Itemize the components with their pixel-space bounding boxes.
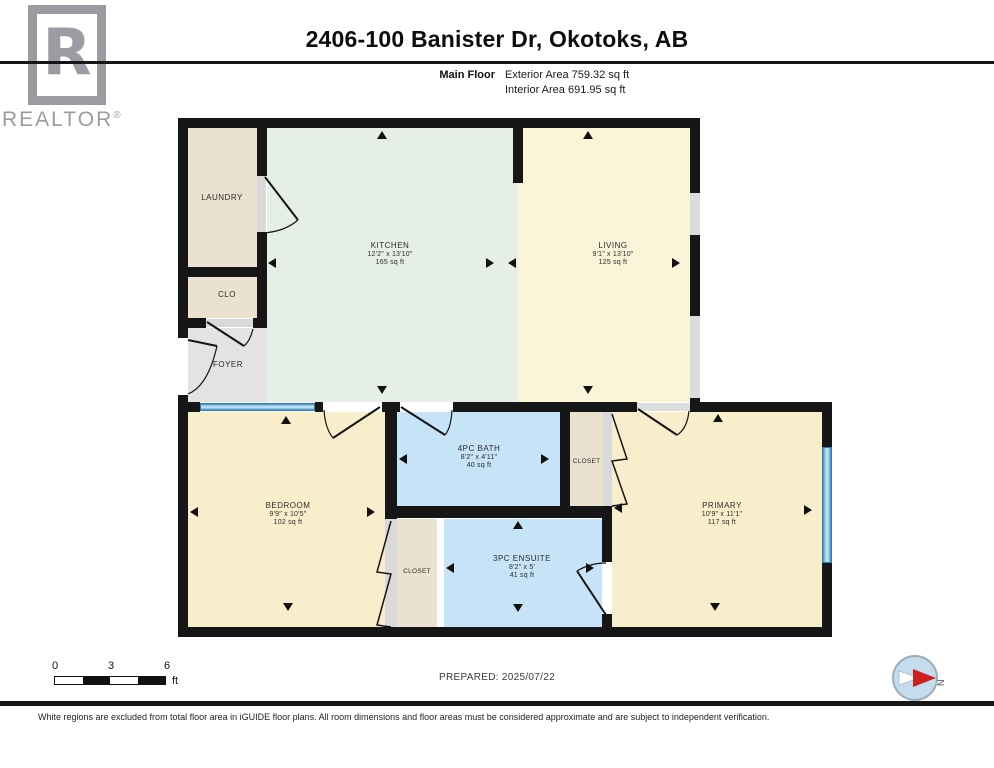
excluded-wall-sliver <box>437 519 444 627</box>
wall-kitchen-living-stub <box>513 128 523 183</box>
dim-arrow-bedroom-down <box>283 603 293 611</box>
interior-area: Interior Area 691.95 sq ft <box>505 84 625 96</box>
scale-tick-6: 6 <box>160 660 174 672</box>
floor-label: Main Floor <box>360 69 495 81</box>
bath-label: 4PC BATH 8'2" x 4'11" 40 sq ft <box>429 444 529 469</box>
dim-arrow-ensuite-down <box>513 604 523 612</box>
wall-left-lower <box>178 395 188 637</box>
primary-area: 117 sq ft <box>672 519 772 526</box>
dim-arrow-kitchen-left <box>268 258 276 268</box>
footer-divider <box>0 701 994 706</box>
prepared-date: PREPARED: 2025/07/22 <box>0 672 994 683</box>
wall-mid-d <box>453 402 637 412</box>
registered-mark: ® <box>113 110 122 121</box>
clo-door-panel <box>206 319 253 327</box>
compass-icon: N <box>889 650 947 708</box>
dim-arrow-ensuite-up <box>513 521 523 529</box>
dim-arrow-kitchen-up <box>377 131 387 139</box>
bath-name: 4PC BATH <box>429 444 529 453</box>
wall-mid-c <box>382 402 400 412</box>
clo-label: CLO <box>192 290 262 299</box>
dim-arrow-bath-right <box>541 454 549 464</box>
bath-dims: 8'2" x 4'11" <box>429 454 529 461</box>
foyer-label: FOYER <box>193 360 263 369</box>
dim-arrow-ensuite-left <box>446 563 454 573</box>
realtor-word-text: REALTOR <box>2 108 113 131</box>
dim-arrow-bedroom-up <box>281 416 291 424</box>
wall-laundry-bottom <box>178 267 267 277</box>
dim-arrow-living-right <box>672 258 680 268</box>
page-title: 2406-100 Banister Dr, Okotoks, AB <box>0 26 994 53</box>
bedroom-closet-label: CLOSET <box>397 568 437 575</box>
dim-arrow-bedroom-right <box>367 507 375 517</box>
living-name: LIVING <box>563 241 663 250</box>
laundry-label: LAUNDRY <box>187 193 257 202</box>
window-bedroom-top <box>200 403 315 411</box>
realtor-logo-icon: R <box>28 5 106 105</box>
compass-north-label: N <box>936 680 946 687</box>
realtor-logo-letter: R <box>42 21 91 85</box>
bath-closet-name: CLOSET <box>567 458 606 465</box>
realtor-logo-word: REALTOR® <box>2 108 123 132</box>
window-living-right-a <box>690 193 700 235</box>
wall-laundry-right-a <box>257 128 267 176</box>
wall-mid-e <box>690 402 832 412</box>
wall-top <box>178 118 700 128</box>
bedroom-closet-track <box>385 519 397 627</box>
foyer-name: FOYER <box>193 360 263 369</box>
bedroom-label: BEDROOM 9'9" x 10'5" 102 sq ft <box>238 501 338 526</box>
dim-arrow-primary-down <box>710 603 720 611</box>
living-dims: 9'1" x 13'10" <box>563 251 663 258</box>
bath-area: 40 sq ft <box>429 462 529 469</box>
living-label: LIVING 9'1" x 13'10" 125 sq ft <box>563 241 663 266</box>
laundry-door-panel <box>257 176 266 232</box>
wall-laundry-right-b <box>257 232 267 267</box>
wall-right-lower-b <box>822 563 832 637</box>
kitchen-area: 165 sq ft <box>340 259 440 266</box>
primary-dims: 10'9" x 11'1" <box>672 511 772 518</box>
wall-bath-ensuite <box>385 506 612 518</box>
window-primary-right <box>822 447 832 563</box>
wall-right-upper-a <box>690 118 700 193</box>
dim-arrow-primary-up <box>713 414 723 422</box>
wall-mid-a <box>178 402 200 412</box>
dim-arrow-primary-left <box>614 503 622 513</box>
dim-arrow-kitchen-down <box>377 386 387 394</box>
dim-arrow-kitchen-right <box>486 258 494 268</box>
ensuite-label: 3PC ENSUITE 8'2" x 5' 41 sq ft <box>462 554 582 579</box>
wall-left-upper <box>178 118 188 338</box>
wall-right-upper-b <box>690 235 700 316</box>
disclaimer-text: White regions are excluded from total fl… <box>38 712 968 722</box>
bedroom-closet-name: CLOSET <box>397 568 437 575</box>
opening-primary-door <box>637 403 690 411</box>
living-area: 125 sq ft <box>563 259 663 266</box>
wall-ensuite-primary-b <box>602 614 612 627</box>
dim-arrow-bedroom-left <box>190 507 198 517</box>
wall-bottom <box>178 627 832 637</box>
scale-tick-0: 0 <box>48 660 62 672</box>
dim-arrow-ensuite-right <box>586 563 594 573</box>
bedroom-area: 102 sq ft <box>238 519 338 526</box>
exterior-area: Exterior Area 759.32 sq ft <box>505 69 629 81</box>
laundry-name: LAUNDRY <box>187 193 257 202</box>
dim-arrow-living-down <box>583 386 593 394</box>
kitchen-label: KITCHEN 12'2" x 13'10" 165 sq ft <box>340 241 440 266</box>
wall-mid-b <box>315 402 323 412</box>
header-divider <box>0 61 994 64</box>
dim-arrow-primary-right <box>804 505 812 515</box>
ensuite-name: 3PC ENSUITE <box>462 554 582 563</box>
wall-right-lower-a <box>822 402 832 447</box>
wall-bedroom-bath <box>385 412 397 519</box>
ensuite-dims: 8'2" x 5' <box>462 564 582 571</box>
wall-clo-bottom-b <box>253 318 267 328</box>
ensuite-area: 41 sq ft <box>462 572 582 579</box>
wall-clo-bottom-a <box>178 318 206 328</box>
primary-label: PRIMARY 10'9" x 11'1" 117 sq ft <box>672 501 772 526</box>
window-living-right-b <box>690 316 700 398</box>
kitchen-dims: 12'2" x 13'10" <box>340 251 440 258</box>
primary-name: PRIMARY <box>672 501 772 510</box>
bath-closet-label: CLOSET <box>567 458 606 465</box>
dim-arrow-bath-left <box>399 454 407 464</box>
kitchen-name: KITCHEN <box>340 241 440 250</box>
wall-ensuite-primary-a <box>602 518 612 562</box>
dim-arrow-living-left <box>508 258 516 268</box>
dim-arrow-living-up <box>583 131 593 139</box>
bedroom-name: BEDROOM <box>238 501 338 510</box>
bedroom-dims: 9'9" x 10'5" <box>238 511 338 518</box>
floorplan-page: R REALTOR® 2406-100 Banister Dr, Okotoks… <box>0 0 994 768</box>
clo-name: CLO <box>192 290 262 299</box>
scale-tick-3: 3 <box>104 660 118 672</box>
